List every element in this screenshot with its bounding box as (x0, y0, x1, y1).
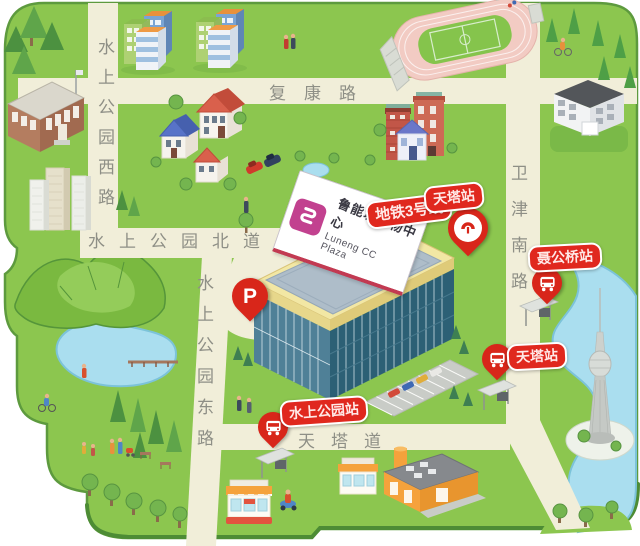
bus-station-badge-niegongqiao[interactable]: 聂公桥站 (527, 242, 602, 273)
road-tianta (206, 424, 510, 450)
pedestrian (244, 197, 249, 213)
parking-pin[interactable]: P (225, 271, 276, 322)
bus-icon (538, 274, 557, 293)
parking-p-icon: P (243, 286, 257, 307)
map-canvas: 复康路 水上公园西路 水上公园北道 水上公园东路 卫津南路 天塔道 鲁能城购物中… (0, 0, 640, 546)
road-shuishang-west (88, 3, 118, 254)
metro-logo-icon (454, 214, 482, 242)
convenience-store (226, 480, 272, 524)
bus-icon (264, 418, 283, 437)
bus-icon (488, 350, 507, 369)
bus-station-badge-tianta[interactable]: 天塔站 (506, 341, 567, 371)
park-walker (82, 364, 87, 378)
luneng-logo-icon (288, 196, 329, 237)
